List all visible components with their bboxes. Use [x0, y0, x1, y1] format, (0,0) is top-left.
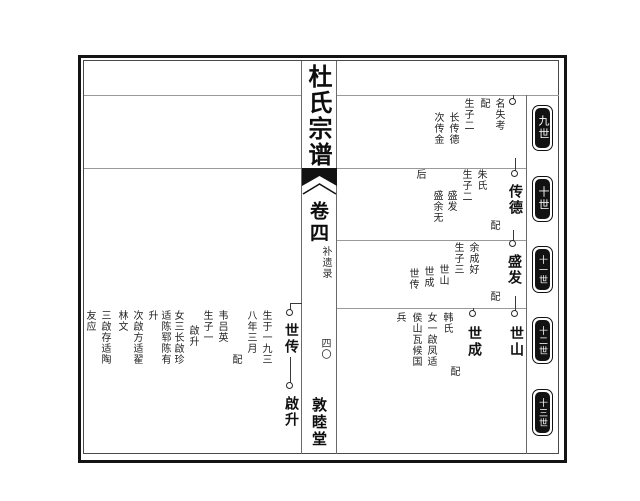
gen10-spouse-label: 配 [488, 220, 498, 231]
gen9-spouse-label: 配 [478, 98, 488, 109]
shichuan-spouse-label: 配 [230, 354, 240, 365]
person-node-gen9 [509, 98, 516, 105]
person-node-shishan [511, 310, 518, 317]
generation-badge-12: 十二世 [532, 317, 553, 364]
shichuan-birth1: 生于一九三 [260, 310, 270, 365]
spine-right-line [336, 61, 337, 454]
gen11-child2: 世成 [422, 266, 432, 288]
generation-badge-11-label: 十一世 [538, 255, 547, 285]
book-title: 杜氏宗谱 [305, 64, 329, 168]
gen10-person-name: 传德 [507, 184, 521, 216]
page-number: 四〇 [319, 338, 329, 360]
person-node-chuande [511, 170, 518, 177]
genealogy-sheet: 杜氏宗谱 卷四 补遗录 四〇 敦睦堂 九世 十世 十一世 十二世 十三世 名失考… [78, 55, 567, 463]
section-label: 补遗录 [320, 246, 330, 279]
person-node-shicheng [469, 310, 476, 317]
person-node-shengfa [509, 240, 516, 247]
fishtail-marker [302, 168, 337, 196]
gen11-child1: 世山 [437, 264, 447, 286]
gen12-shicheng-daughter1: 女一啟凤适 [425, 312, 435, 367]
shichuan-daughters3: 升 [146, 310, 156, 321]
gen12-shicheng-spouse: 韩氏 [441, 312, 451, 334]
gen11-spouse-label: 配 [488, 291, 498, 302]
gen9-note-name: 名失考 [493, 98, 503, 131]
gen9-child1: 长传德 [447, 112, 457, 145]
shichuan-daughters4: 次啟方适翟 [131, 310, 141, 365]
generation-badge-12-label: 十二世 [538, 326, 547, 356]
gen10-child2: 盛余无 [431, 190, 441, 223]
shichuan-daughters2: 适陈郓陈有 [159, 310, 169, 365]
shichuan-birth2: 八年三月 [245, 310, 255, 354]
gen12-shishan-name: 世山 [508, 326, 522, 358]
generation-badge-10-label: 十世 [537, 186, 548, 212]
shichuan-daughters5: 林文 [116, 310, 126, 332]
spine-left-line [301, 61, 302, 454]
shichuan-son: 啟升 [187, 325, 197, 347]
gen11-child3: 世传 [407, 268, 417, 290]
qisheng-name: 啟升 [283, 396, 297, 428]
gen9-child2: 次传金 [432, 112, 442, 145]
gen12-shicheng-daughter2: 侯山瓦候国 [410, 312, 420, 367]
generation-badge-9-label: 九世 [537, 115, 548, 141]
gen12-shicheng-spouse-label: 配 [448, 366, 458, 377]
connector-shichuan-horizontal [290, 303, 302, 304]
row-line-gen10-right [336, 168, 526, 169]
gen10-spouse: 朱氏 [475, 169, 485, 191]
gen10-children-heading: 生子二 [460, 169, 470, 202]
generation-badge-9: 九世 [532, 105, 553, 151]
generation-badge-10: 十世 [532, 176, 553, 222]
volume-label: 卷四 [308, 201, 327, 245]
connector-gen10 [515, 158, 516, 171]
person-node-shichuan [286, 309, 293, 316]
badge-column-line [526, 95, 527, 454]
gen12-shicheng-daughter3: 兵 [394, 312, 404, 323]
row-line-gen12-right [336, 308, 526, 309]
shichuan-name: 世传 [283, 323, 297, 355]
row-line-gen10-left [84, 168, 301, 169]
page-canvas: 杜氏宗谱 卷四 补遗录 四〇 敦睦堂 九世 十世 十一世 十二世 十三世 名失考… [0, 0, 640, 501]
connector-qisheng [290, 357, 291, 383]
shichuan-daughters6: 三啟存适陶 [99, 310, 109, 365]
person-node-qisheng [286, 382, 293, 389]
gen12-shicheng-name: 世成 [466, 326, 480, 358]
gen11-spouse: 余成好 [467, 242, 477, 275]
generation-badge-13: 十三世 [532, 389, 553, 436]
gen9-children-heading: 生子二 [462, 98, 472, 131]
connector-gen12-shishan [515, 296, 516, 311]
row-line-gen11-right [336, 240, 526, 241]
generation-badge-11: 十一世 [532, 246, 553, 293]
shichuan-daughters1: 女三长啟珍 [172, 310, 182, 365]
shichuan-spouse: 韦吕英 [216, 310, 226, 343]
gen11-children-heading: 生子三 [452, 242, 462, 275]
gen10-child1: 盛发 [445, 190, 455, 212]
gen11-person-name: 盛发 [506, 254, 520, 286]
gen10-child2-cont: 后 [414, 169, 424, 180]
shichuan-son-heading: 生子一 [201, 310, 211, 343]
generation-badge-13-label: 十三世 [538, 398, 547, 428]
row-line-gen9-left [84, 95, 301, 96]
shichuan-daughters7: 友应 [84, 310, 94, 332]
hall-name: 敦睦堂 [310, 397, 325, 448]
